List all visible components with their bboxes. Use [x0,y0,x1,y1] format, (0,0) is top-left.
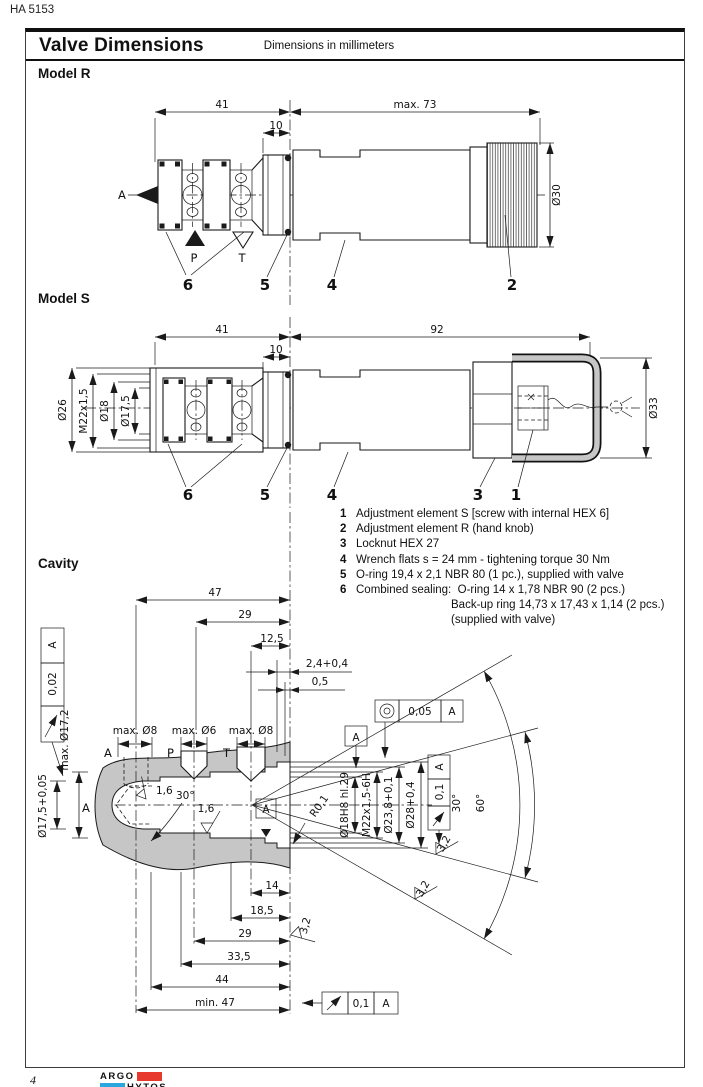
legend-text: Wrench flats s = 24 mm - tightening torq… [356,553,610,568]
dim-29-bot-label: 29 [238,928,251,940]
doc-number: HA 5153 [10,4,54,16]
port-t-label: T [237,251,246,265]
dim-175-label: Ø17,5+0,05 [37,774,49,838]
callout-2: 2 [507,276,517,294]
legend-num: 3 [340,537,356,552]
dim-10-label: 10 [269,344,282,356]
lead-seal-icon [610,401,622,413]
legend-num: 1 [340,507,356,522]
dim-18h8-label: Ø18H8 hl.29 [339,772,351,838]
datum-a-left-label: A [82,801,90,815]
port-a-label: A [104,746,112,760]
dim-dia30-label: Ø30 [551,184,563,206]
dim-dia33-label: Ø33 [648,397,660,419]
legend-text: (supplied with valve) [451,613,555,628]
model-r-heading: Model R [38,66,91,81]
ang-60-label: 60° [475,794,487,813]
callout-5: 5 [260,486,270,504]
legend-item: 2Adjustment element R (hand knob) [340,522,688,537]
dim-10-label: 10 [269,120,282,132]
ang-30-label: 30° [451,794,463,813]
dim-28-label: Ø28+0,4 [405,781,417,828]
fcf-conc-tol: 0,05 [408,706,431,718]
dim-41-label: 41 [215,324,228,336]
callout-6: 6 [183,276,193,294]
title-bar: Valve Dimensions Dimensions in millimete… [26,32,684,61]
sf-32-fan1-label: 3,2 [435,834,454,854]
page-title: Valve Dimensions [39,35,204,57]
concentricity-icon [380,704,394,718]
fcf-right-datum: A [434,763,446,771]
callout-5: 5 [260,276,270,294]
fcf-runout-right: A 0,1 [428,755,450,844]
legend-text: O-ring 19,4 x 2,1 NBR 80 (1 pc.), suppli… [356,568,624,583]
legend-item: 1Adjustment element S [screw with intern… [340,507,688,522]
legend-text: Adjustment element R (hand knob) [356,522,534,537]
dim-max73-label: max. 73 [394,99,437,111]
dim-335-label: 33,5 [227,951,250,963]
dim-125-label: 12,5 [260,633,283,645]
legend-num: 6 [340,583,356,598]
port-p-label: P [191,251,198,265]
logo-argo-text: ARGO [100,1071,135,1082]
runout-icon [327,996,341,1010]
sf-32-mouth-label: 3,2 [298,916,314,935]
dim-m22-label: M22x1,5-6H [361,773,373,837]
port-t-label: T [222,746,231,760]
port-a-label: A [118,188,126,202]
dim-14-label: 14 [265,880,279,892]
model-r-drawing: 41 max. 73 10 A [0,90,703,305]
port-p-arrow-icon [185,230,205,246]
runout-icon [433,812,444,826]
fcf-left-datum: A [47,641,59,649]
fcf-runout-bottom: 0,1 A [302,992,398,1014]
legend-num: 5 [340,568,356,583]
callout-4: 4 [327,276,337,294]
oring-bottom-icon [285,442,291,448]
logo-hytos-text: HYTOS [127,1082,167,1087]
oring-bottom-icon [285,229,291,235]
datum-box-bore-label: A [262,804,270,816]
dim-185-label: 18,5 [250,905,273,917]
sf-32-fan2-label: 3,2 [414,879,433,899]
oring-top-icon [285,155,291,161]
legend-text: Combined sealing: O-ring 14 x 1,78 NBR 9… [356,583,625,598]
port-p-label: P [167,746,174,760]
legend: 1Adjustment element S [screw with intern… [340,507,688,629]
datasheet-page: HA 5153 Valve Dimensions Dimensions in m… [0,0,703,1087]
locknut [473,362,512,458]
fcf-concentricity: 0,05 A [375,700,463,758]
rad-r01-label: R0,1 [308,793,332,820]
legend-text: Adjustment element S [screw with interna… [356,507,609,522]
argo-hytos-logo: ARGO HYTOS [100,1071,190,1087]
callout-6: 6 [183,486,193,504]
fcf-right-tol: 0,1 [434,784,446,801]
dim-238-label: Ø23,8+0,1 [383,776,395,833]
legend-item: Back-up ring 14,73 x 17,43 x 1,14 (2 pcs… [340,598,688,613]
port-t-arrow-icon [233,232,253,248]
sf-16-bore-label: 1,6 [198,803,215,815]
dim-min47-label: min. 47 [195,997,235,1009]
legend-item: 5O-ring 19,4 x 2,1 NBR 80 (1 pc.), suppl… [340,568,688,583]
logo-blue-box [100,1083,125,1087]
dim-47-label: 47 [208,587,221,599]
fcf-bottom-tol: 0,1 [353,998,370,1010]
legend-num: 4 [340,553,356,568]
legend-item: 4Wrench flats s = 24 mm - tightening tor… [340,553,688,568]
legend-num: 2 [340,522,356,537]
dim-dia26-label: Ø26 [57,399,69,421]
legend-item: 6Combined sealing: O-ring 14 x 1,78 NBR … [340,583,688,598]
fcf-bottom-datum: A [382,998,390,1010]
dim-41-label: 41 [215,99,228,111]
dim-dia18-label: Ø18 [99,400,111,422]
logo-red-box [137,1072,162,1081]
page-number: 4 [30,1073,36,1087]
dim-44-label: 44 [215,974,229,986]
legend-item: 3Locknut HEX 27 [340,537,688,552]
model-s-drawing: 41 92 10 Ø26 M22x1,5 Ø18 Ø17,5 [0,315,703,510]
dim-05-label: 0,5 [312,676,329,688]
legend-text: Locknut HEX 27 [356,537,439,552]
callout-1: 1 [511,486,521,504]
dim-dia175-label: Ø17,5 [120,395,132,427]
dim-max172-label: max. Ø17,2 [59,709,71,770]
dim-29-top-label: 29 [238,609,251,621]
page-subtitle: Dimensions in millimeters [264,40,394,52]
sf-16-cone-label: 1,6 [156,785,173,797]
oring-top-icon [285,372,291,378]
model-r-valve-body: A [118,143,537,247]
legend-text: Back-up ring 14,73 x 17,43 x 1,14 (2 pcs… [451,598,665,613]
dim-92-label: 92 [430,324,443,336]
fcf-conc-datum: A [448,706,456,718]
dim-port-a-label: max. Ø8 [113,725,158,737]
legend-num [340,598,356,613]
hand-knob-knurl [487,143,537,247]
runout-icon [45,715,57,737]
dim-m22-label: M22x1,5 [78,388,90,433]
callout-4: 4 [327,486,337,504]
dim-24-label: 2,4+0,4 [306,658,349,670]
datum-box-top-label: A [352,732,360,744]
legend-item: (supplied with valve) [340,613,688,628]
callout-3: 3 [473,486,483,504]
fcf-left-tol: 0,02 [47,672,59,695]
legend-num [340,613,356,628]
ang-30-cone-label: 30° [176,790,195,802]
port-a-arrow-icon [136,186,158,204]
